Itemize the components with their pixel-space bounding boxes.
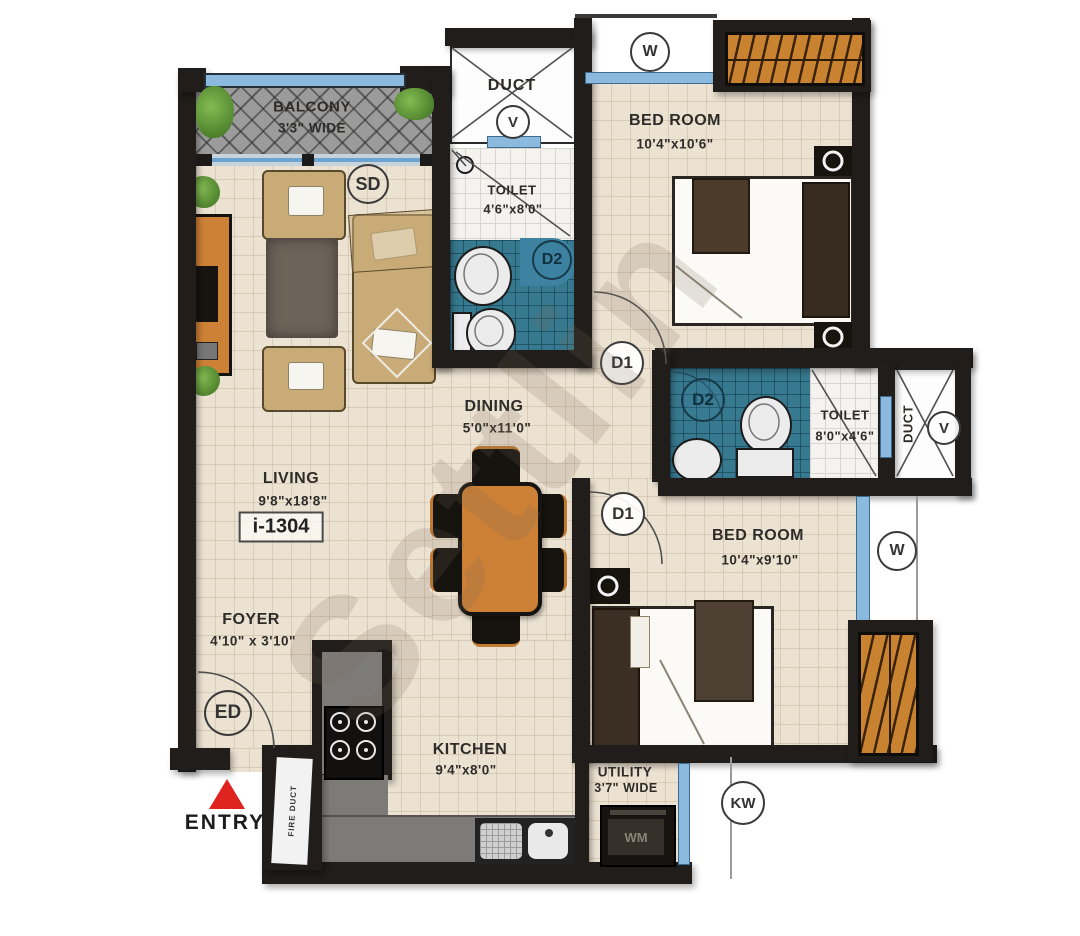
bedroom1-label: BED ROOM [629, 112, 721, 130]
toilet2-wc-tank [736, 448, 794, 478]
wall-duct1-top [445, 28, 592, 46]
bed2-blanket [694, 600, 754, 702]
door2-marker-top: D2 [532, 240, 572, 280]
nightstand2 [586, 568, 630, 604]
dining-table [458, 482, 542, 616]
sliding-door-marker: SD [347, 164, 389, 204]
wall-balcony-corner-left [178, 68, 206, 92]
entry-arrow-icon [209, 779, 245, 809]
toilet2-label: TOILET [821, 408, 870, 423]
sink-bowl-left [480, 823, 522, 859]
bedroom1-window-head [575, 14, 717, 18]
bedroom1-dims: 10'4"x10'6" [636, 137, 713, 152]
living-label: LIVING [263, 470, 319, 488]
bed1-quilt [802, 182, 850, 318]
wall-bedroom2-left [572, 478, 590, 762]
foyer-label: FOYER [222, 611, 280, 629]
kitchen-dims: 9'4"x8'0" [435, 763, 496, 778]
wall-toilet2-left [652, 350, 670, 482]
vent-marker-right: V [927, 411, 961, 445]
sliding-door-panel3 [420, 154, 432, 166]
lamp-icon [598, 576, 619, 597]
toilet2-wc-bowl [740, 396, 792, 454]
dining-chair-left2 [430, 548, 459, 592]
toilet2-dry-area [810, 368, 878, 480]
wardrobe1 [725, 32, 865, 86]
balcony-dims: 3'3" WIDE [278, 121, 346, 136]
stove [324, 706, 384, 780]
window-toilet2 [880, 396, 892, 458]
wall-toilet1-bottom [432, 350, 592, 368]
door1-marker-bottom: D1 [601, 492, 645, 536]
door1-marker-top: D1 [600, 341, 644, 385]
wall-kitchen-utility [575, 763, 589, 865]
lamp-icon [823, 151, 844, 172]
living-dims: 9'8"x18'8" [258, 494, 327, 509]
wall-bedroom1-bottom [655, 348, 973, 368]
duct1-label: DUCT [488, 77, 536, 95]
sink-bowl-right [528, 823, 568, 859]
speaker-box [196, 342, 218, 360]
fire-duct-label: FIRE DUCT [286, 785, 298, 837]
dining-dims: 5'0"x11'0" [463, 421, 532, 436]
plant-balcony-right [394, 88, 434, 120]
utility-dims: 3'7" WIDE [594, 781, 657, 795]
fire-duct-panel: FIRE DUCT [271, 757, 312, 865]
window-utility [678, 763, 690, 865]
wardrobe2 [858, 632, 919, 756]
hall-floor [574, 368, 652, 478]
door2-marker-right: D2 [681, 378, 725, 422]
bedroom2-dims: 10'4"x9'10" [721, 553, 798, 568]
utility-label: UTILITY [598, 765, 653, 780]
wall-bedroom1-left [574, 18, 592, 368]
toilet1-shower-head [456, 156, 474, 174]
wall-left [178, 72, 196, 772]
bed1-pillow [692, 178, 750, 254]
toilet1-dims: 4'6"x8'0" [483, 202, 542, 217]
dining-label: DINING [465, 398, 524, 416]
unit-number: i-1304 [239, 512, 324, 543]
sliding-door-glass [208, 158, 420, 162]
dining-chair-right1 [538, 494, 567, 538]
kitchen-floor [382, 640, 578, 820]
window-bedroom2-sill [916, 496, 918, 622]
washing-machine: WM [600, 805, 676, 867]
sofa-blanket [348, 209, 438, 273]
balcony-label: BALCONY [273, 99, 351, 116]
wall-foyer-bottom [170, 748, 230, 770]
window-bedroom1 [585, 72, 715, 84]
dining-chair-left1 [430, 494, 459, 538]
bed2-pillow [630, 616, 650, 668]
entry-door-marker: ED [204, 690, 252, 736]
window-marker-right: W [877, 531, 917, 571]
duct2-label: DUCT [901, 405, 916, 443]
foyer-dims: 4'10" x 3'10" [210, 634, 296, 649]
bedroom2-label: BED ROOM [712, 527, 804, 545]
entry-threshold [230, 748, 262, 772]
sliding-door-panel1 [196, 154, 212, 166]
armchair-bottom-pillow [288, 362, 324, 390]
washing-machine-label: WM [624, 830, 647, 845]
wall-toilet2-bottom [658, 478, 972, 496]
entry-label: ENTRY [185, 811, 265, 835]
armchair-top-pillow [288, 186, 324, 216]
kitchen-window-marker: KW [721, 781, 765, 825]
wall-duct1-left [432, 68, 450, 368]
window-bedroom2 [856, 496, 870, 624]
dining-chair-right2 [538, 548, 567, 592]
floor-plan: WM FIRE DUCT [0, 0, 1080, 936]
lamp-icon [823, 327, 844, 348]
balcony-railing [204, 73, 406, 88]
vent-marker-top: V [496, 105, 530, 139]
toilet1-washbasin [454, 246, 512, 306]
toilet2-dims: 8'0"x4'6" [815, 429, 874, 444]
rug [266, 238, 338, 338]
toilet2-washbasin [672, 438, 722, 482]
sliding-door-panel2 [302, 154, 314, 166]
toilet1-label: TOILET [488, 183, 537, 198]
kitchen-label: KITCHEN [433, 741, 508, 759]
window-marker-top: W [630, 32, 670, 72]
dining-chair-top [472, 446, 520, 483]
nightstand1-top [814, 146, 852, 176]
